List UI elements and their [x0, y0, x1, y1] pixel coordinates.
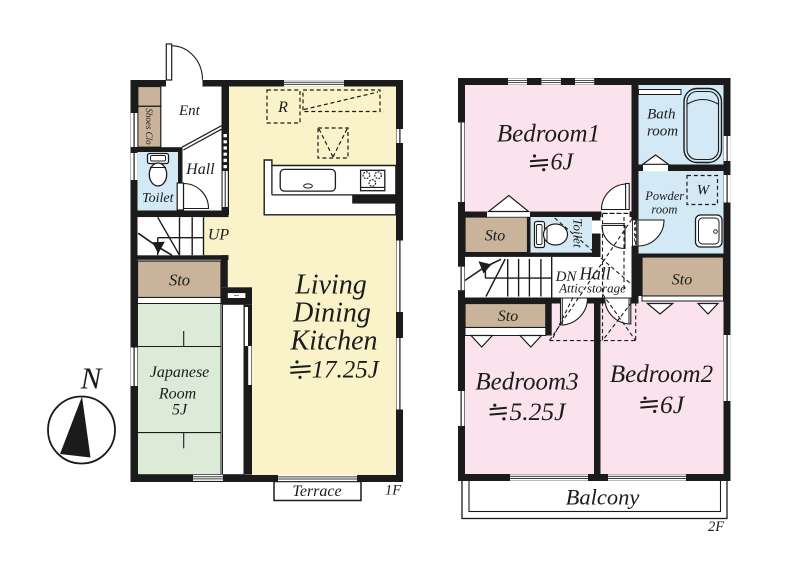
svg-text:Balcony: Balcony: [566, 484, 640, 509]
svg-text:Bedroom2: Bedroom2: [610, 361, 713, 388]
svg-text:N: N: [80, 361, 104, 396]
svg-text:Bedroom3: Bedroom3: [475, 369, 578, 396]
svg-text:5J: 5J: [172, 402, 188, 419]
svg-text:Ent: Ent: [178, 103, 201, 119]
svg-text:Bath: Bath: [647, 107, 675, 123]
svg-text:R: R: [277, 99, 288, 116]
svg-text:UP: UP: [208, 227, 230, 244]
svg-text:6J: 6J: [660, 390, 686, 419]
svg-text:Powder: Powder: [644, 189, 684, 203]
svg-text:2F: 2F: [708, 519, 724, 535]
svg-text:1F: 1F: [385, 483, 401, 499]
svg-text:Japanese: Japanese: [150, 364, 210, 381]
svg-text:6J: 6J: [551, 150, 575, 176]
svg-text:room: room: [647, 124, 678, 140]
svg-text:Shoes Clo: Shoes Clo: [144, 108, 154, 145]
svg-text:Attic storage: Attic storage: [558, 280, 626, 295]
svg-text:Room: Room: [158, 386, 196, 403]
svg-text:17.25J: 17.25J: [312, 357, 381, 384]
svg-text:room: room: [651, 202, 677, 216]
svg-text:5.25J: 5.25J: [510, 397, 568, 426]
svg-text:Hall: Hall: [185, 161, 215, 178]
svg-text:Toilet: Toilet: [142, 191, 174, 206]
svg-text:Terrace: Terrace: [292, 483, 341, 500]
svg-text:Kitchen: Kitchen: [289, 326, 377, 357]
svg-text:Sto: Sto: [498, 308, 518, 325]
svg-text:Sto: Sto: [169, 271, 190, 290]
svg-text:Living: Living: [294, 270, 367, 301]
svg-text:Dining: Dining: [292, 298, 371, 329]
svg-text:Sto: Sto: [485, 228, 505, 245]
svg-text:W: W: [697, 182, 711, 198]
svg-text:Sto: Sto: [672, 272, 692, 289]
svg-text:Bedroom1: Bedroom1: [497, 121, 600, 148]
